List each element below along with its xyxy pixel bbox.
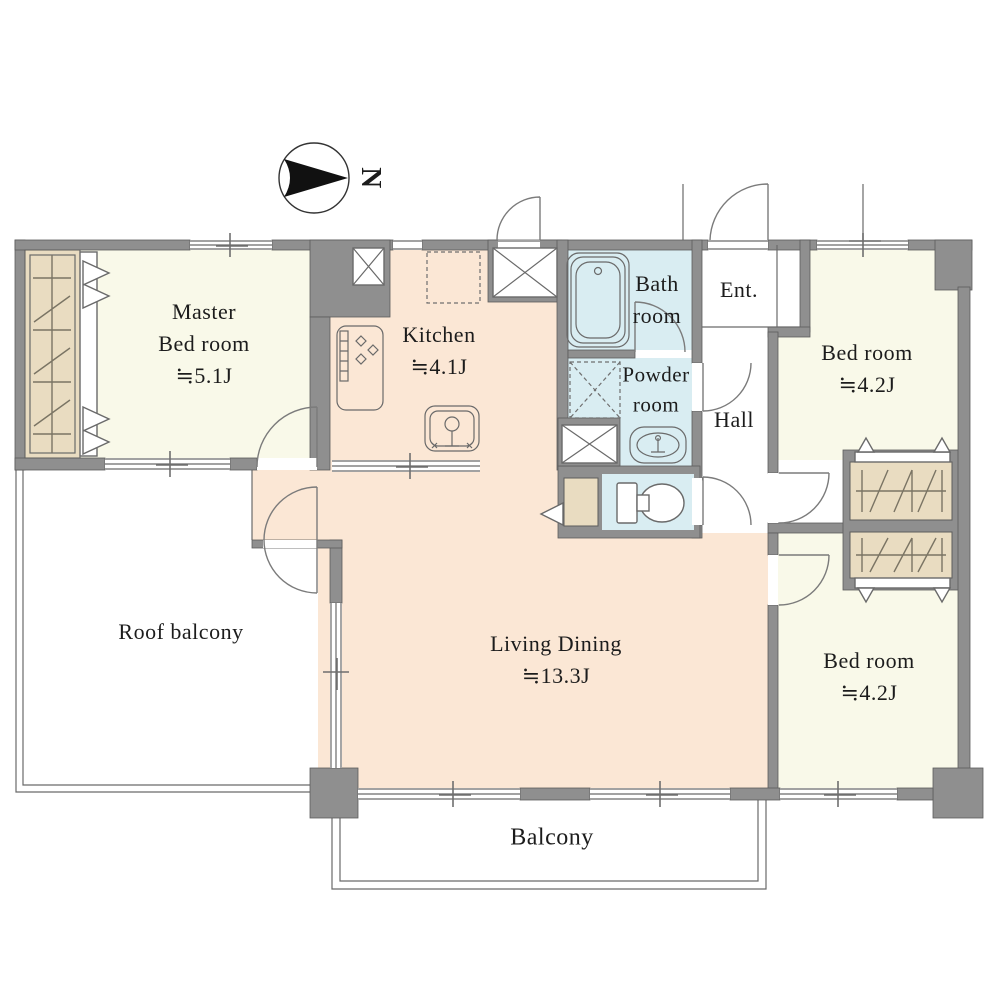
kitchen-area: ≒4.1J [402, 351, 475, 383]
powder-room-label: Powder room [622, 360, 689, 421]
pillar [935, 240, 972, 290]
entrance-label: Ent. [720, 274, 758, 306]
toilet-icon [617, 483, 684, 523]
bedroom-north-label: Bed room ≒4.2J [821, 337, 912, 401]
entrance-door-arc [710, 184, 768, 240]
floor-shoe-cabinet [777, 245, 800, 327]
window [393, 240, 422, 250]
pipe-shaft-icon [353, 248, 384, 285]
pipe-shaft-icon [493, 248, 557, 297]
master-bedroom-label: Master Bed room ≒5.1J [158, 296, 249, 392]
service-door-arc [497, 197, 540, 240]
pillar [933, 768, 983, 818]
floor-vestibule [252, 468, 330, 540]
pillar [310, 768, 358, 818]
living-dining-area: ≒13.3J [490, 660, 622, 692]
toilet-room [541, 474, 702, 530]
bedroom-north-area: ≒4.2J [821, 369, 912, 401]
compass-north-label: N [350, 167, 392, 188]
compass-north-icon [279, 143, 349, 213]
floor-plan-drawing [0, 0, 1000, 1000]
balcony-label: Balcony [510, 821, 593, 856]
pipe-shaft-icon [562, 425, 617, 463]
bedroom-north-door-arc [779, 473, 829, 523]
master-bedroom-area: ≒5.1J [158, 360, 249, 392]
bedroom-south-label: Bed room ≒4.2J [823, 645, 914, 709]
living-dining-label: Living Dining ≒13.3J [490, 628, 622, 692]
bathroom-label: Bath room [633, 268, 681, 332]
roof-balcony-label: Roof balcony [118, 616, 243, 648]
floor-plan: N Master Bed room ≒5.1J Kitchen ≒4.1J Ba… [0, 0, 1000, 1000]
hall-label: Hall [714, 404, 754, 436]
storage-cabinet [564, 478, 598, 526]
closet-master [25, 250, 109, 458]
kitchen-label: Kitchen ≒4.1J [402, 319, 475, 383]
bedroom-south-area: ≒4.2J [823, 677, 914, 709]
